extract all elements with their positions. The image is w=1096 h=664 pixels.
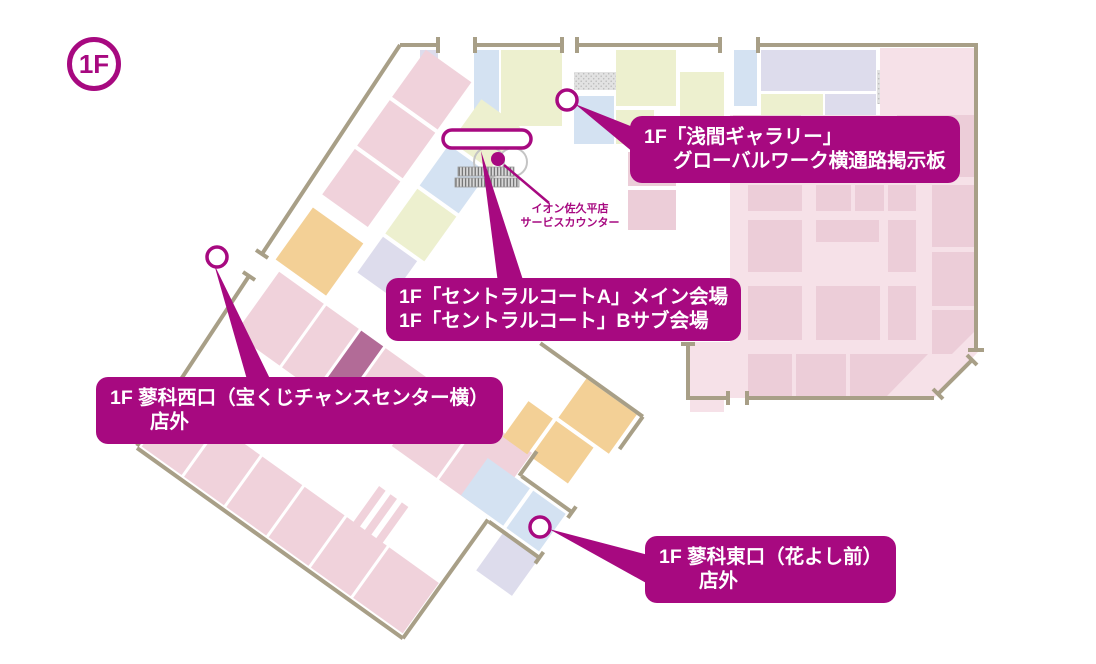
gallery-label-line1: 1F「浅間ギャラリー」: [644, 126, 842, 148]
service-counter-dot: [491, 152, 505, 166]
room: [748, 185, 802, 211]
room: [932, 185, 976, 247]
service-counter-line1: イオン佐久平店: [532, 203, 609, 215]
room: [816, 286, 880, 340]
service-counter-line2: サービスカウンター: [521, 217, 620, 229]
east-exit-label: 1F 蓼科東口（花よし前） 店外: [645, 536, 896, 603]
gallery-marker: [557, 90, 577, 110]
room: [616, 50, 676, 106]
room: [888, 220, 916, 272]
room: [888, 185, 916, 211]
service-counter-note: イオン佐久平店 サービスカウンター: [505, 202, 635, 231]
gallery-label: 1F「浅間ギャラリー」 グローバルワーク横通路掲示板: [630, 116, 960, 183]
room: [932, 252, 976, 306]
room: [888, 286, 916, 340]
west-exit-marker: [207, 247, 227, 267]
room: [574, 72, 620, 90]
room: [628, 190, 676, 230]
east-pointer: [549, 529, 652, 584]
east-label-line1: 1F 蓼科東口（花よし前）: [659, 546, 882, 568]
room: [748, 354, 792, 396]
east-label-line2: 店外: [699, 569, 882, 593]
room: [501, 50, 562, 126]
west-label-line2: 店外: [150, 410, 489, 434]
west-exit-label: 1F 蓼科西口（宝くじチャンスセンター横） 店外: [96, 377, 503, 444]
gallery-label-line2: グローバルワーク横通路掲示板: [673, 149, 946, 173]
floor-badge: 1F: [67, 37, 121, 91]
room: [816, 185, 851, 211]
room: [796, 354, 846, 396]
entrance-vestibule: [690, 398, 724, 412]
west-label-line1: 1F 蓼科西口（宝くじチャンスセンター横）: [110, 387, 489, 409]
room: [748, 220, 802, 272]
central-label-line1: 1F「セントラルコートA」メイン会場: [399, 286, 728, 308]
room: [816, 220, 879, 242]
central-court-stage: [443, 130, 531, 148]
room: [748, 286, 802, 340]
central-court-label: 1F「セントラルコートA」メイン会場 1F「セントラルコート」Bサブ会場: [386, 278, 741, 341]
room: [761, 50, 876, 91]
room: [474, 50, 499, 112]
central-label-line2: 1F「セントラルコート」Bサブ会場: [399, 309, 728, 333]
room: [734, 50, 757, 106]
room: [855, 185, 884, 211]
room: [680, 72, 724, 118]
east-exit-marker: [530, 517, 550, 537]
floor-map-page: 1F イオン佐久平店 サービスカウンター 1F「浅間ギャラリー」 グローバルワー…: [0, 0, 1096, 664]
